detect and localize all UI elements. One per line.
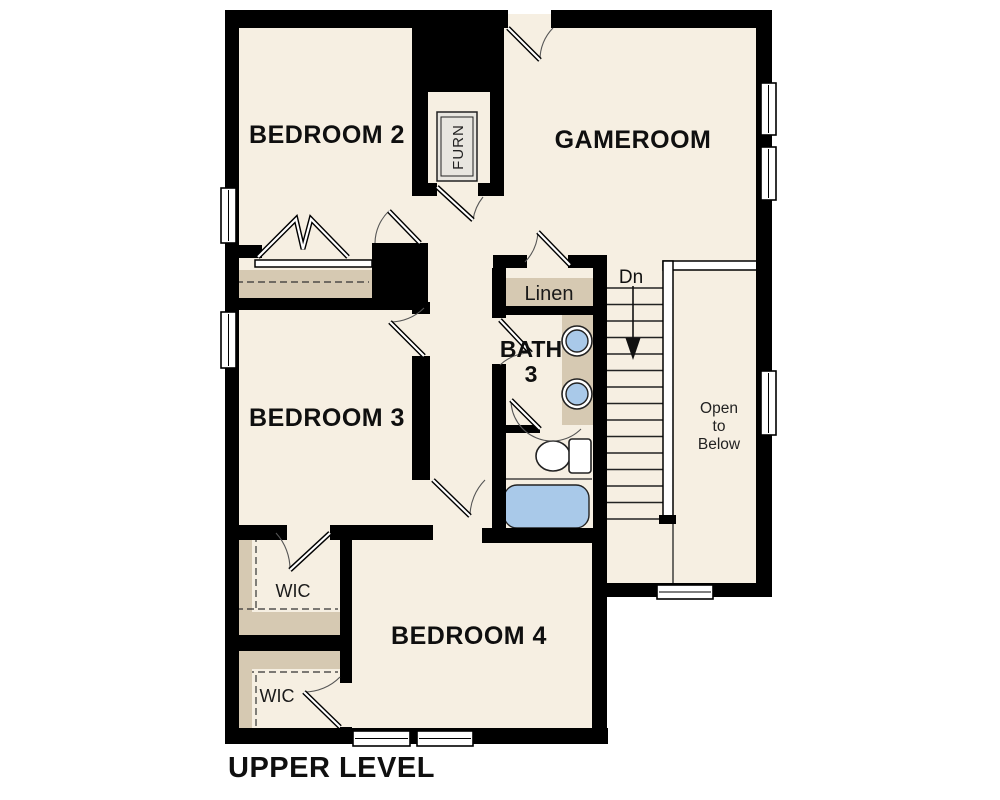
wall-segment: [592, 530, 607, 742]
wic-upper-label: WIC: [276, 581, 311, 601]
wall-segment: [412, 302, 430, 314]
wall-segment: [492, 306, 600, 315]
wic2-top-shelf: [233, 651, 340, 669]
wall-segment: [492, 425, 540, 433]
bath3-label-line1: BATH: [500, 336, 562, 362]
bedroom3-label: BEDROOM 3: [249, 404, 405, 432]
linen-label: Linen: [525, 283, 574, 305]
wall-segment: [225, 245, 262, 258]
wall-segment: [225, 525, 287, 540]
wall-segment: [225, 298, 428, 310]
wic1-bottom-shelf: [233, 612, 340, 635]
open-to-below-line3: Below: [698, 436, 741, 453]
wall-segment: [490, 10, 504, 196]
wall-segment: [225, 10, 239, 744]
wall-segment: [412, 356, 430, 480]
wall-segment: [593, 255, 607, 530]
stairs-dn-label: Dn: [619, 267, 643, 288]
toilet-tank-icon: [569, 439, 591, 473]
sink-basin-icon: [566, 330, 588, 352]
toilet-bowl-icon: [536, 441, 570, 471]
wall-segment: [478, 183, 492, 196]
wall-segment: [412, 183, 437, 196]
sink-basin-icon: [566, 383, 588, 405]
floor-plan-page: FURN: [0, 0, 1000, 800]
gameroom-label: GAMEROOM: [555, 126, 712, 154]
railing-end-post: [659, 515, 676, 524]
wall-segment: [551, 10, 770, 28]
wic-lower-label: WIC: [260, 686, 295, 706]
railing-left: [663, 261, 673, 519]
bedroom2-label: BEDROOM 2: [249, 121, 405, 149]
open-to-below-line1: Open: [700, 400, 738, 417]
bathtub-icon: [504, 485, 589, 528]
wall-segment: [492, 364, 506, 543]
open-to-below-line2: to: [713, 418, 726, 435]
wall-segment: [412, 28, 428, 183]
bedroom2-closet-shelf: [233, 270, 372, 298]
level-title: UPPER LEVEL: [228, 752, 435, 784]
wall-segment: [493, 255, 527, 268]
floor-plan-canvas: FURN: [0, 0, 1000, 800]
wall-segment: [340, 525, 352, 683]
wall-segment: [340, 727, 352, 742]
furnace-unit: FURN: [437, 112, 477, 181]
wall-segment: [225, 635, 352, 651]
furnace-label: FURN: [450, 124, 467, 170]
bedroom4-label: BEDROOM 4: [391, 622, 547, 650]
railing-top: [663, 261, 757, 270]
bath3-label-line2: 3: [525, 361, 538, 387]
closet-door-track: [255, 260, 372, 267]
wall-segment: [482, 528, 607, 543]
